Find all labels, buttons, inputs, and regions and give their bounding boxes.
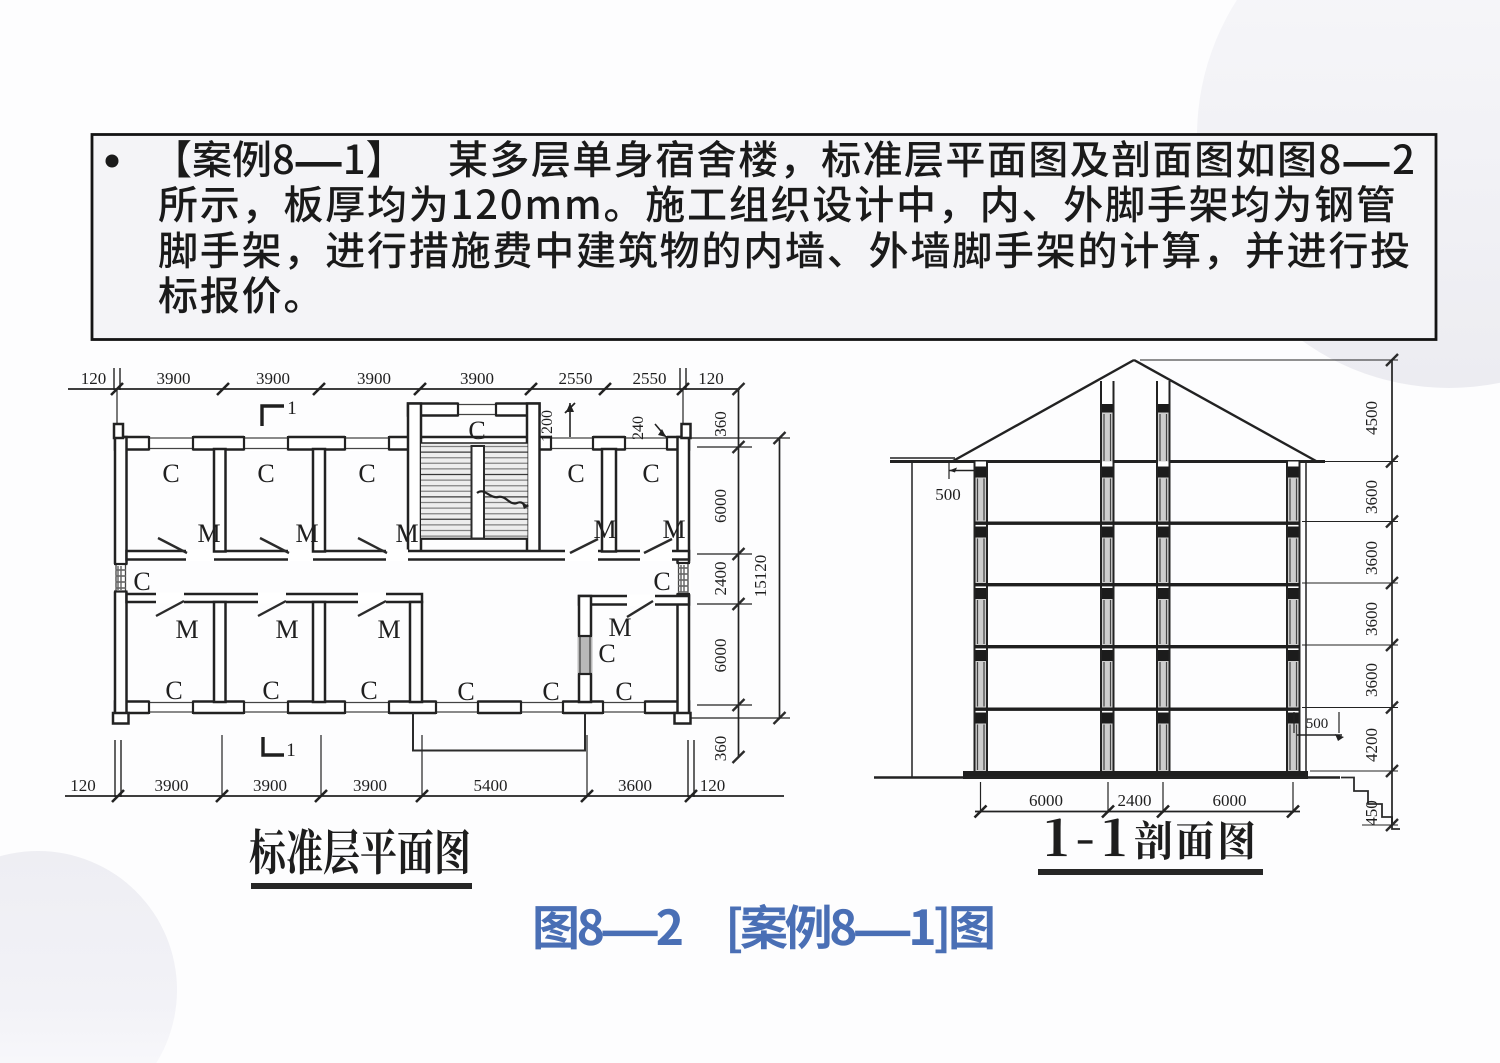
svg-text:C: C bbox=[162, 459, 179, 488]
svg-text:500: 500 bbox=[1306, 716, 1329, 732]
svg-text:120: 120 bbox=[81, 369, 107, 388]
svg-text:3600: 3600 bbox=[1362, 480, 1381, 514]
svg-text:C: C bbox=[642, 459, 659, 488]
svg-text:2400: 2400 bbox=[1118, 791, 1152, 810]
svg-text:C: C bbox=[360, 676, 377, 705]
svg-text:15120: 15120 bbox=[751, 555, 770, 598]
svg-text:120: 120 bbox=[700, 776, 726, 795]
svg-text:6000: 6000 bbox=[1213, 791, 1247, 810]
svg-text:C: C bbox=[262, 676, 279, 705]
svg-text:M: M bbox=[197, 519, 220, 548]
svg-text:M: M bbox=[608, 613, 631, 642]
svg-text:C: C bbox=[653, 567, 670, 596]
svg-text:4200: 4200 bbox=[1362, 728, 1381, 762]
svg-text:M: M bbox=[395, 519, 418, 548]
svg-text:M: M bbox=[275, 615, 298, 644]
svg-text:C: C bbox=[567, 459, 584, 488]
svg-text:1200: 1200 bbox=[539, 410, 556, 442]
svg-text:120: 120 bbox=[70, 776, 96, 795]
svg-text:3600: 3600 bbox=[1362, 541, 1381, 575]
svg-text:C: C bbox=[468, 416, 485, 445]
svg-text:C: C bbox=[457, 677, 474, 706]
svg-text:450: 450 bbox=[1362, 800, 1381, 826]
svg-text:3900: 3900 bbox=[155, 776, 189, 795]
svg-text:360: 360 bbox=[711, 411, 730, 437]
svg-text:1: 1 bbox=[286, 740, 296, 761]
svg-text:2550: 2550 bbox=[633, 369, 667, 388]
svg-text:3900: 3900 bbox=[357, 369, 391, 388]
svg-text:3600: 3600 bbox=[1362, 602, 1381, 636]
svg-text:C: C bbox=[133, 567, 150, 596]
svg-text:3900: 3900 bbox=[253, 776, 287, 795]
svg-text:M: M bbox=[593, 515, 616, 544]
svg-text:6000: 6000 bbox=[1029, 791, 1063, 810]
svg-text:3900: 3900 bbox=[256, 369, 290, 388]
svg-text:C: C bbox=[598, 639, 615, 668]
svg-text:C: C bbox=[165, 676, 182, 705]
svg-text:500: 500 bbox=[935, 485, 961, 504]
svg-text:6000: 6000 bbox=[711, 489, 730, 523]
svg-text:240: 240 bbox=[630, 416, 647, 440]
svg-text:M: M bbox=[377, 615, 400, 644]
svg-text:2550: 2550 bbox=[559, 369, 593, 388]
svg-text:5400: 5400 bbox=[474, 776, 508, 795]
svg-text:3900: 3900 bbox=[353, 776, 387, 795]
svg-text:6000: 6000 bbox=[711, 639, 730, 673]
svg-text:C: C bbox=[615, 677, 632, 706]
svg-text:M: M bbox=[175, 615, 198, 644]
svg-text:3900: 3900 bbox=[157, 369, 191, 388]
svg-text:360: 360 bbox=[711, 736, 730, 762]
svg-text:C: C bbox=[542, 677, 559, 706]
svg-text:3900: 3900 bbox=[460, 369, 494, 388]
svg-text:1: 1 bbox=[287, 398, 297, 419]
svg-text:3600: 3600 bbox=[1362, 663, 1381, 697]
svg-text:120: 120 bbox=[698, 369, 724, 388]
svg-text:2400: 2400 bbox=[711, 562, 730, 596]
svg-text:M: M bbox=[662, 515, 685, 544]
svg-text:4500: 4500 bbox=[1362, 401, 1381, 435]
svg-text:C: C bbox=[358, 459, 375, 488]
svg-text:M: M bbox=[295, 519, 318, 548]
svg-text:3600: 3600 bbox=[618, 776, 652, 795]
svg-text:C: C bbox=[257, 459, 274, 488]
